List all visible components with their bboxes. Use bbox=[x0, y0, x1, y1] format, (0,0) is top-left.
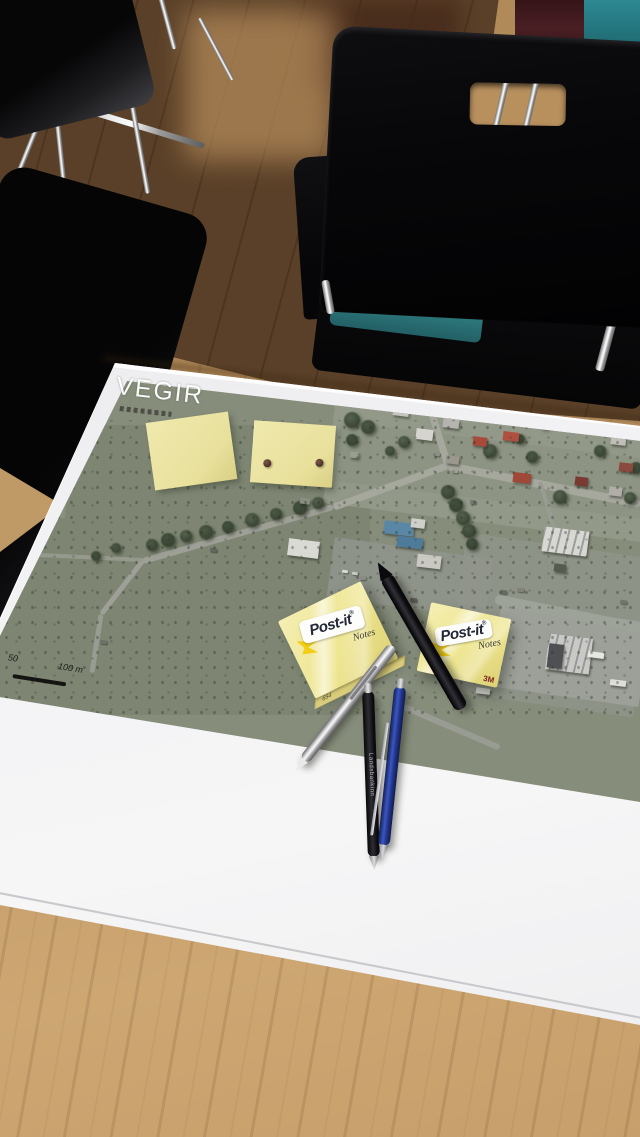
chair-chrome-bar bbox=[492, 82, 510, 126]
map-tree bbox=[539, 417, 551, 429]
pen-clicker bbox=[396, 678, 405, 689]
pen-brand-text: Landsbankinn bbox=[367, 753, 375, 797]
registered-mark: ® bbox=[482, 620, 487, 627]
scale-label-50: 50 bbox=[7, 652, 18, 663]
chair-handle-cutout bbox=[469, 82, 566, 126]
sticky-note bbox=[146, 412, 238, 491]
chair-foreground-backrest bbox=[319, 26, 640, 329]
registered-mark: ® bbox=[349, 610, 354, 617]
photo-scene: VEGIR 50 100 m Post-it® Notes 3M 654 Po bbox=[0, 0, 640, 1137]
pin-dot bbox=[263, 459, 272, 468]
pen-clicker bbox=[364, 683, 372, 693]
chair-chrome-bar bbox=[522, 82, 540, 126]
sticky-note bbox=[250, 420, 336, 488]
map-tree bbox=[444, 407, 456, 419]
pin-dot bbox=[315, 459, 324, 468]
